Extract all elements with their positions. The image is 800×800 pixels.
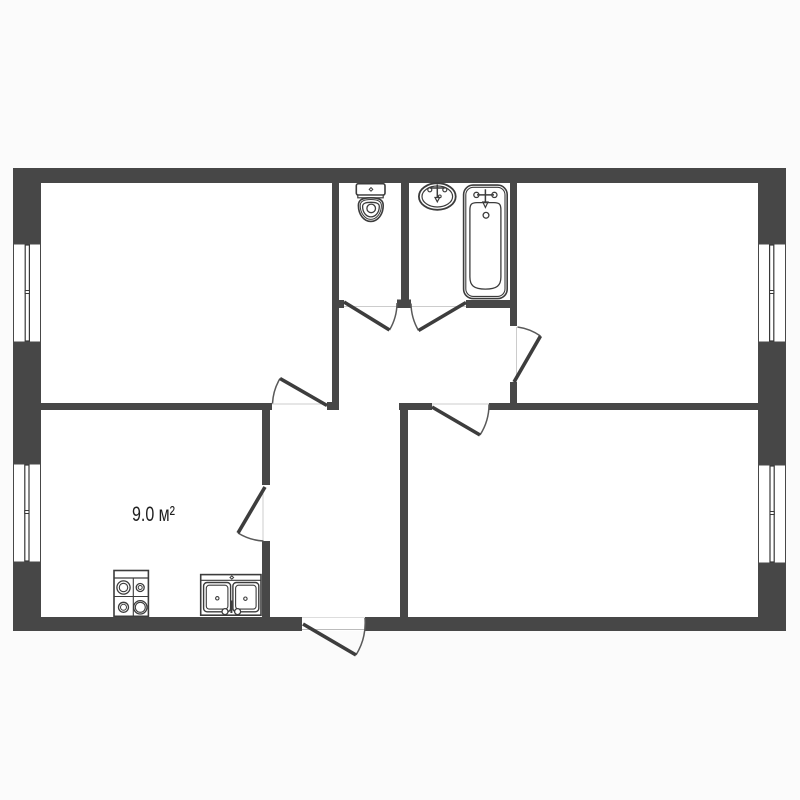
svg-text:9.0 м²: 9.0 м² [132,503,175,526]
